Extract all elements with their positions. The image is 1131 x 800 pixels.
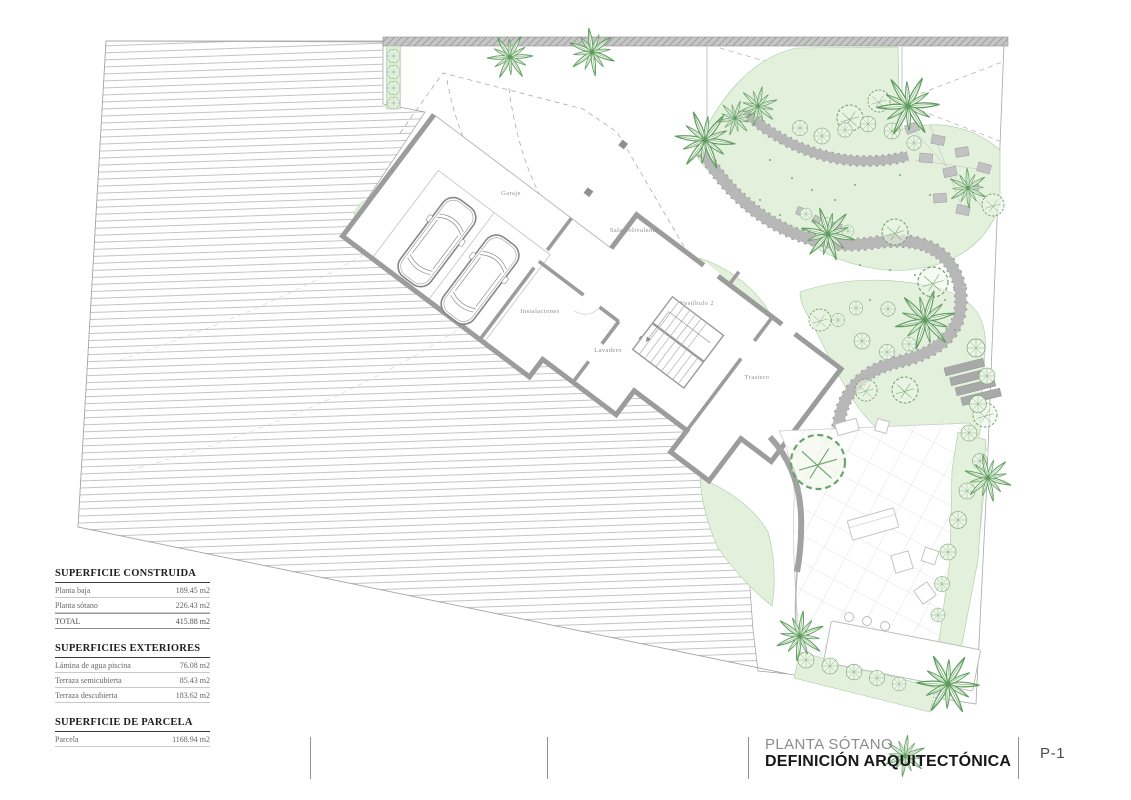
sheet-title: DEFINICIÓN ARQUITECTÓNICA (765, 753, 1011, 771)
sheet-phase: PLANTA SÓTANO (765, 736, 893, 753)
row-value: 76.08 m2 (180, 661, 210, 670)
table-row: Planta baja 189.45 m2 (55, 583, 210, 598)
table-superficie-parcela: SUPERFICIE DE PARCELA Parcela 1168.94 m2 (55, 715, 210, 747)
table-row: Planta sótano 226.43 m2 (55, 598, 210, 613)
row-label: Parcela (55, 735, 79, 744)
title-divider (310, 737, 311, 779)
column (618, 140, 628, 150)
drawing-sheet: Garaje Sala polivalente Instalaciones Ve… (0, 0, 1131, 800)
area-tables: SUPERFICIE CONSTRUIDA Planta baja 189.45… (55, 566, 210, 759)
table-title: SUPERFICIE DE PARCELA (55, 715, 210, 732)
table-row: Terraza descubierta 183.62 m2 (55, 688, 210, 703)
sheet-number: P-1 (1040, 745, 1065, 762)
row-value: 1168.94 m2 (172, 735, 210, 744)
title-divider (748, 737, 749, 779)
room-label-sala-polivalente: Sala polivalente (610, 227, 658, 234)
title-divider (1018, 737, 1019, 779)
room-label-garaje: Garaje (501, 190, 521, 197)
row-label: Lámina de agua piscina (55, 661, 131, 670)
row-value: 85.43 m2 (180, 676, 210, 685)
row-label: Terraza semicubierta (55, 676, 122, 685)
table-row: Terraza semicubierta 85.43 m2 (55, 673, 210, 688)
room-label-instalaciones: Instalaciones (520, 308, 559, 315)
room-label-trastero: Trastero (745, 374, 770, 381)
row-value: 226.43 m2 (176, 601, 210, 610)
row-value: 189.45 m2 (176, 586, 210, 595)
room-label-vestibulo-2: Vestíbulo 2 (680, 300, 714, 307)
table-row: Parcela 1168.94 m2 (55, 732, 210, 747)
table-superficies-exteriores: SUPERFICIES EXTERIORES Lámina de agua pi… (55, 641, 210, 703)
top-boundary-wall (383, 37, 1008, 46)
row-label: Terraza descubierta (55, 691, 117, 700)
row-label: TOTAL (55, 617, 80, 626)
table-row-total: TOTAL 415.88 m2 (55, 613, 210, 629)
row-label: Planta baja (55, 586, 90, 595)
table-title: SUPERFICIES EXTERIORES (55, 641, 210, 658)
row-value: 183.62 m2 (176, 691, 210, 700)
table-superficie-construida: SUPERFICIE CONSTRUIDA Planta baja 189.45… (55, 566, 210, 629)
title-divider (547, 737, 548, 779)
entrance-hedge (387, 46, 401, 109)
row-value: 415.88 m2 (176, 617, 210, 626)
column (584, 187, 594, 197)
row-label: Planta sótano (55, 601, 98, 610)
table-row: Lámina de agua piscina 76.08 m2 (55, 658, 210, 673)
table-title: SUPERFICIE CONSTRUIDA (55, 566, 210, 583)
room-label-lavadero: Lavadero (594, 347, 622, 354)
